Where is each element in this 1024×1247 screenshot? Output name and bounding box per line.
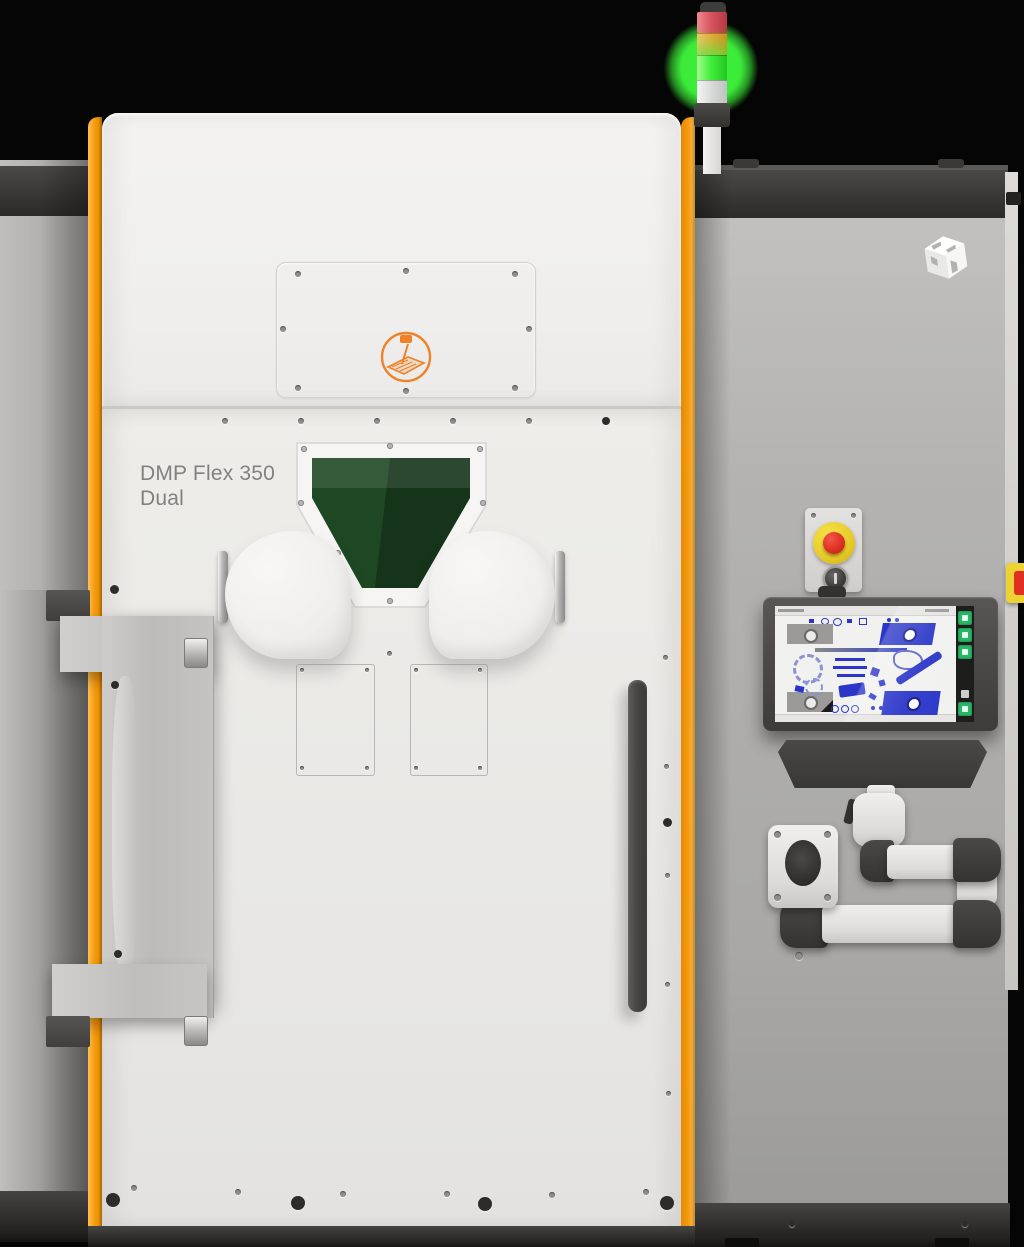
panel-screw: [450, 418, 456, 424]
bolt: [660, 1196, 674, 1210]
mechanism-bottom-block: [46, 1016, 90, 1047]
machine-foot: [725, 1238, 759, 1247]
glove-port-left[interactable]: [225, 531, 351, 659]
panel-screw: [444, 1191, 450, 1197]
bolt: [106, 1193, 120, 1207]
tower-base: [694, 103, 730, 127]
slab-highlight: [112, 676, 138, 976]
accent-strip-left: [88, 117, 102, 1232]
panel-screw: [663, 818, 672, 827]
side-estop-button[interactable]: [1014, 571, 1024, 595]
right-cabinet-base: [695, 1203, 1010, 1247]
panel-screw: [340, 1191, 346, 1197]
panel-screw: [114, 950, 122, 958]
right-cabinet-top-band: [695, 170, 1008, 218]
wall-bracket: [768, 825, 838, 908]
right-cabinet-vent-tab: [1006, 192, 1021, 205]
panel-screw: [549, 1192, 555, 1198]
panel-screw: [111, 681, 119, 689]
screen-sheen: [775, 606, 956, 722]
right-cabinet: [695, 165, 1008, 1205]
tower-segment-red: [697, 12, 727, 33]
panel-screw: [110, 585, 119, 594]
tower-segment-amber: [697, 33, 727, 56]
bracket-opening: [785, 840, 821, 886]
arm-pad: [953, 838, 1001, 882]
panel-screw: [795, 952, 803, 960]
bolt: [291, 1196, 305, 1210]
estop-plate: [805, 508, 862, 592]
panel-screw: [387, 651, 392, 656]
glove-port-hinge-right: [555, 551, 565, 623]
panel-screw: [526, 418, 532, 424]
arm-elbow: [853, 793, 905, 847]
panel-screw: [298, 418, 304, 424]
3d-systems-logo-icon: [920, 231, 972, 285]
mechanism-latch-bottom[interactable]: [184, 1016, 208, 1046]
right-cabinet-hinge-cap: [733, 159, 759, 168]
monitor: [763, 597, 998, 731]
service-panel-right: [410, 664, 488, 776]
glove-port-right[interactable]: [429, 531, 555, 659]
accent-strip-right: [681, 117, 695, 1232]
laser-melting-icon: [378, 329, 434, 385]
mechanism-bottom-arm: [52, 964, 207, 1018]
bolt: [478, 1197, 492, 1211]
left-panel-base: [0, 1191, 88, 1242]
panel-screw: [374, 418, 380, 424]
panel-screw: [665, 982, 670, 987]
left-panel-door-shadow: [0, 590, 88, 1240]
right-cabinet-hinge-cap: [938, 159, 964, 168]
panel-screw: [665, 873, 670, 878]
touchscreen[interactable]: [775, 606, 956, 722]
hood-panel: [102, 113, 681, 406]
door-handle[interactable]: [628, 680, 647, 1012]
camera-icon[interactable]: [958, 645, 972, 659]
panel-screw: [131, 1185, 137, 1191]
keyboard-tray: [778, 740, 987, 788]
service-panel-left: [296, 664, 375, 776]
panel-screw: [663, 655, 668, 660]
mechanism-latch-top[interactable]: [184, 638, 208, 668]
export-icon[interactable]: [958, 611, 972, 625]
main-cabinet-base: [88, 1226, 695, 1247]
arm-lower-tube: [822, 905, 957, 943]
panel-screw: [602, 417, 610, 425]
sidebar-mini-icon: [961, 690, 969, 698]
panel-screw: [235, 1189, 241, 1195]
key-slot: [834, 573, 837, 584]
panel-screw: [222, 418, 228, 424]
machine-photo: DMP Flex 350 Dual: [0, 0, 1024, 1247]
estop-button[interactable]: [823, 532, 845, 554]
tower-segment-green: [697, 55, 727, 81]
mechanism-slab: [102, 616, 214, 1018]
tower-segment-clear: [697, 80, 727, 104]
report-icon[interactable]: [958, 628, 972, 642]
arm-pad: [953, 900, 1001, 948]
right-cabinet-left-shadow: [695, 165, 731, 1205]
panel-screw: [664, 764, 669, 769]
arm-upper-tube: [887, 845, 959, 879]
user-icon[interactable]: [958, 702, 972, 716]
screen-sidebar: [956, 606, 974, 722]
panel-screw: [643, 1189, 649, 1195]
machine-foot: [935, 1238, 969, 1247]
tower-pole: [703, 127, 721, 174]
panel-screw: [666, 1091, 671, 1096]
